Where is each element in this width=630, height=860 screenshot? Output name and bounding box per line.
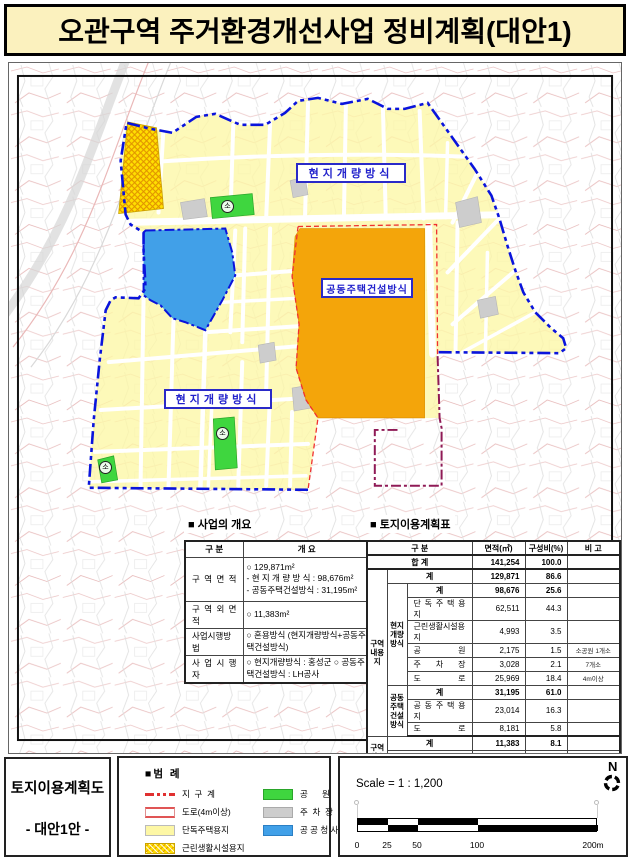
plan-sheet: 오관구역 주거환경개선사업 정비계획(대안1): [0, 0, 630, 860]
north-label: N: [608, 759, 617, 774]
row-area: 2,175: [472, 643, 525, 657]
label-apartment-construction: 공동주택건설방식: [321, 278, 413, 298]
row-ratio: 1.5: [525, 643, 567, 657]
scale-label: Scale = 1 : 1,200: [356, 778, 443, 790]
overview-heading: ■ 사업의 개요: [184, 515, 255, 533]
row-label: 공 동 주 택 용 지: [407, 699, 472, 722]
total-label: 합 계: [367, 555, 472, 569]
label-text: 현지개량방식: [176, 391, 261, 407]
outer-sum-ratio: 8.1: [525, 736, 567, 750]
scale-segment: [358, 819, 388, 825]
legend-label: 지 구 계: [182, 788, 215, 800]
legend-heading: ■범 례: [145, 766, 182, 781]
park-swatch: [263, 789, 293, 800]
overview-row-label: 사업시행방법: [185, 628, 243, 655]
onsite-sum-ratio: 25.6: [525, 583, 567, 597]
apt-sum-area: 31,195: [472, 685, 525, 699]
single-housing-swatch: [145, 825, 175, 836]
onsite-sum-area: 98,676: [472, 583, 525, 597]
total-ratio: 100.0: [525, 555, 567, 569]
row-label: 도 로: [407, 722, 472, 736]
total-remark: [567, 555, 620, 569]
scale-bar: [357, 818, 597, 832]
landuse-table: 구 분 면적(㎡) 구성비(%) 비 고 합 계 141,254 100.0 구…: [366, 540, 621, 754]
legend-box: ■범 례 지 구 계 도로(4m이상) 단독주택용지 근린생활시설용지 공 원 …: [117, 756, 331, 857]
onsite-sum-label: 계: [407, 583, 472, 597]
row-remark: 소공원 1개소: [567, 643, 620, 657]
district-line-swatch: [145, 793, 175, 796]
row-remark: 4m이상: [567, 671, 620, 685]
scale-tick: 0: [355, 840, 360, 850]
apt-sum-label: 계: [407, 685, 472, 699]
overview-col-desc: 개 요: [243, 541, 371, 557]
onsite-sum-remark: [567, 583, 620, 597]
row-ratio: 2.1: [525, 657, 567, 671]
legend-item-single-housing: 단독주택용지: [145, 824, 229, 836]
overview-table: 구 분 개 요 구 역 면 적 ○ 129,871m² - 현 지 개 량 방 …: [184, 540, 372, 684]
legend-item-road: 도로(4m이상): [145, 806, 231, 818]
legend-label: 공 원: [300, 788, 330, 800]
park-marker-corner: 소: [99, 461, 112, 474]
legend-label: 단독주택용지: [182, 824, 229, 836]
row-ratio: 18.4: [525, 671, 567, 685]
scale-tick: 100: [470, 840, 484, 850]
road-swatch: [145, 807, 175, 818]
overview-row-label: 사 업 시 행 자: [185, 655, 243, 683]
scale-segment: [388, 825, 418, 831]
overview-row-value: ○ 혼용방식 (현지개량방식+공동주택건설방식): [243, 628, 371, 655]
total-area: 141,254: [472, 555, 525, 569]
inner-sum-remark: [567, 569, 620, 583]
overview-row-label: 구 역 면 적: [185, 557, 243, 601]
landuse-col-category: 구 분: [367, 541, 472, 555]
scale-tick: 50: [412, 840, 421, 850]
row-label: 공 원: [407, 643, 472, 657]
map-alternative: - 대안1안 -: [6, 819, 109, 839]
scale-tick: 200m: [582, 840, 603, 850]
landuse-col-remark: 비 고: [567, 541, 620, 555]
scale-segment: [418, 819, 478, 825]
inner-sum-ratio: 86.6: [525, 569, 567, 583]
map-title: 토지이용계획도: [6, 777, 109, 798]
title-banner: 오관구역 주거환경개선사업 정비계획(대안1): [4, 4, 626, 56]
overview-row-value: ○ 현지개량방식 : 홍성군 ○ 공동주택건설방식 : LH공사: [243, 655, 371, 683]
neighborhood-swatch: [145, 843, 175, 854]
landuse-col-ratio: 구성비(%): [525, 541, 567, 555]
parking-swatch: [263, 807, 293, 818]
scale-box: Scale = 1 : 1,200 N 0 25 50 100 200m: [338, 756, 628, 857]
group-outer-area: 구역 외용 지: [367, 736, 387, 754]
park-marker-bottom: 소: [216, 427, 229, 440]
row-area: 8,181: [472, 722, 525, 736]
row-label: 주 차 장: [407, 657, 472, 671]
row-label: 근린생활시설용지: [407, 620, 472, 643]
row-remark: [567, 597, 620, 620]
overview-row-value: ○ 11,383m²: [243, 601, 371, 628]
overview-row-label: 구 역 외 면 적: [185, 601, 243, 628]
legend-label: 도로(4m이상): [182, 806, 231, 818]
compass-icon: [602, 773, 622, 793]
row-remark: [567, 722, 620, 736]
row-remark: [567, 750, 620, 754]
legend-item-park: 공 원: [263, 788, 330, 800]
row-ratio: 5.8: [525, 722, 567, 736]
legend-item-public-office: 공 공 청 사: [263, 824, 338, 836]
landuse-col-area: 면적(㎡): [472, 541, 525, 555]
legend-item-neighborhood: 근린생활시설용지: [145, 842, 245, 854]
overview-row-value: ○ 129,871m² - 현 지 개 량 방 식 : 98,676m² - 공…: [243, 557, 371, 601]
outer-sum-label: 계: [387, 736, 472, 750]
row-ratio: 7.6: [525, 750, 567, 754]
row-remark: 7개소: [567, 657, 620, 671]
public-office-swatch: [263, 825, 293, 836]
inner-sum-area: 129,871: [472, 569, 525, 583]
legend-label: 공 공 청 사: [300, 824, 338, 836]
apartment-zone: [292, 229, 425, 418]
page-title: 오관구역 주거환경개선사업 정비계획(대안1): [58, 10, 571, 50]
group-apartment-method: 공동 주택 건설 방식: [387, 685, 407, 736]
apt-sum-ratio: 61.0: [525, 685, 567, 699]
overview-col-category: 구 분: [185, 541, 243, 557]
row-remark: [567, 699, 620, 722]
scale-segment: [478, 825, 598, 831]
row-remark: [567, 620, 620, 643]
legend-item-district-line: 지 구 계: [145, 788, 215, 800]
landuse-map-panel: 현지개량방식 공동주택건설방식 현지개량방식 소 소 소 ■ 사업의 개요 구 …: [8, 62, 622, 754]
group-onsite-method: 현지 개량 방식: [387, 583, 407, 685]
scalebar-hairline: [357, 805, 358, 818]
legend-label: 근린생활시설용지: [182, 842, 245, 854]
row-ratio: 44.3: [525, 597, 567, 620]
label-text: 공동주택건설방식: [326, 281, 408, 296]
outer-sum-area: 11,383: [472, 736, 525, 750]
scalebar-hairline: [597, 805, 598, 818]
row-area: 3,028: [472, 657, 525, 671]
legend-label: 주 차 장: [300, 806, 333, 818]
apt-sum-remark: [567, 685, 620, 699]
row-ratio: 16.3: [525, 699, 567, 722]
outer-sum-remark: [567, 736, 620, 750]
row-area: 62,511: [472, 597, 525, 620]
scale-tick: 25: [382, 840, 391, 850]
row-label: 도 로: [407, 671, 472, 685]
row-label: 공공청사: [387, 750, 472, 754]
row-area: 10,703: [472, 750, 525, 754]
park-marker-top: 소: [221, 200, 234, 213]
row-area: 25,969: [472, 671, 525, 685]
map-title-box: 토지이용계획도 - 대안1안 -: [4, 757, 111, 857]
row-label: 단 독 주 택 용 지: [407, 597, 472, 620]
row-area: 4,993: [472, 620, 525, 643]
row-ratio: 3.5: [525, 620, 567, 643]
inner-sum-label: 계: [387, 569, 472, 583]
landuse-heading: ■ 토지이용계획표: [366, 515, 455, 533]
group-inner-area: 구역 내용 지: [367, 569, 387, 736]
legend-item-parking: 주 차 장: [263, 806, 333, 818]
label-onsite-improvement-bottom: 현지개량방식: [164, 389, 272, 409]
label-onsite-improvement-top: 현지개량방식: [296, 163, 406, 183]
label-text: 현지개량방식: [309, 165, 394, 181]
row-area: 23,014: [472, 699, 525, 722]
